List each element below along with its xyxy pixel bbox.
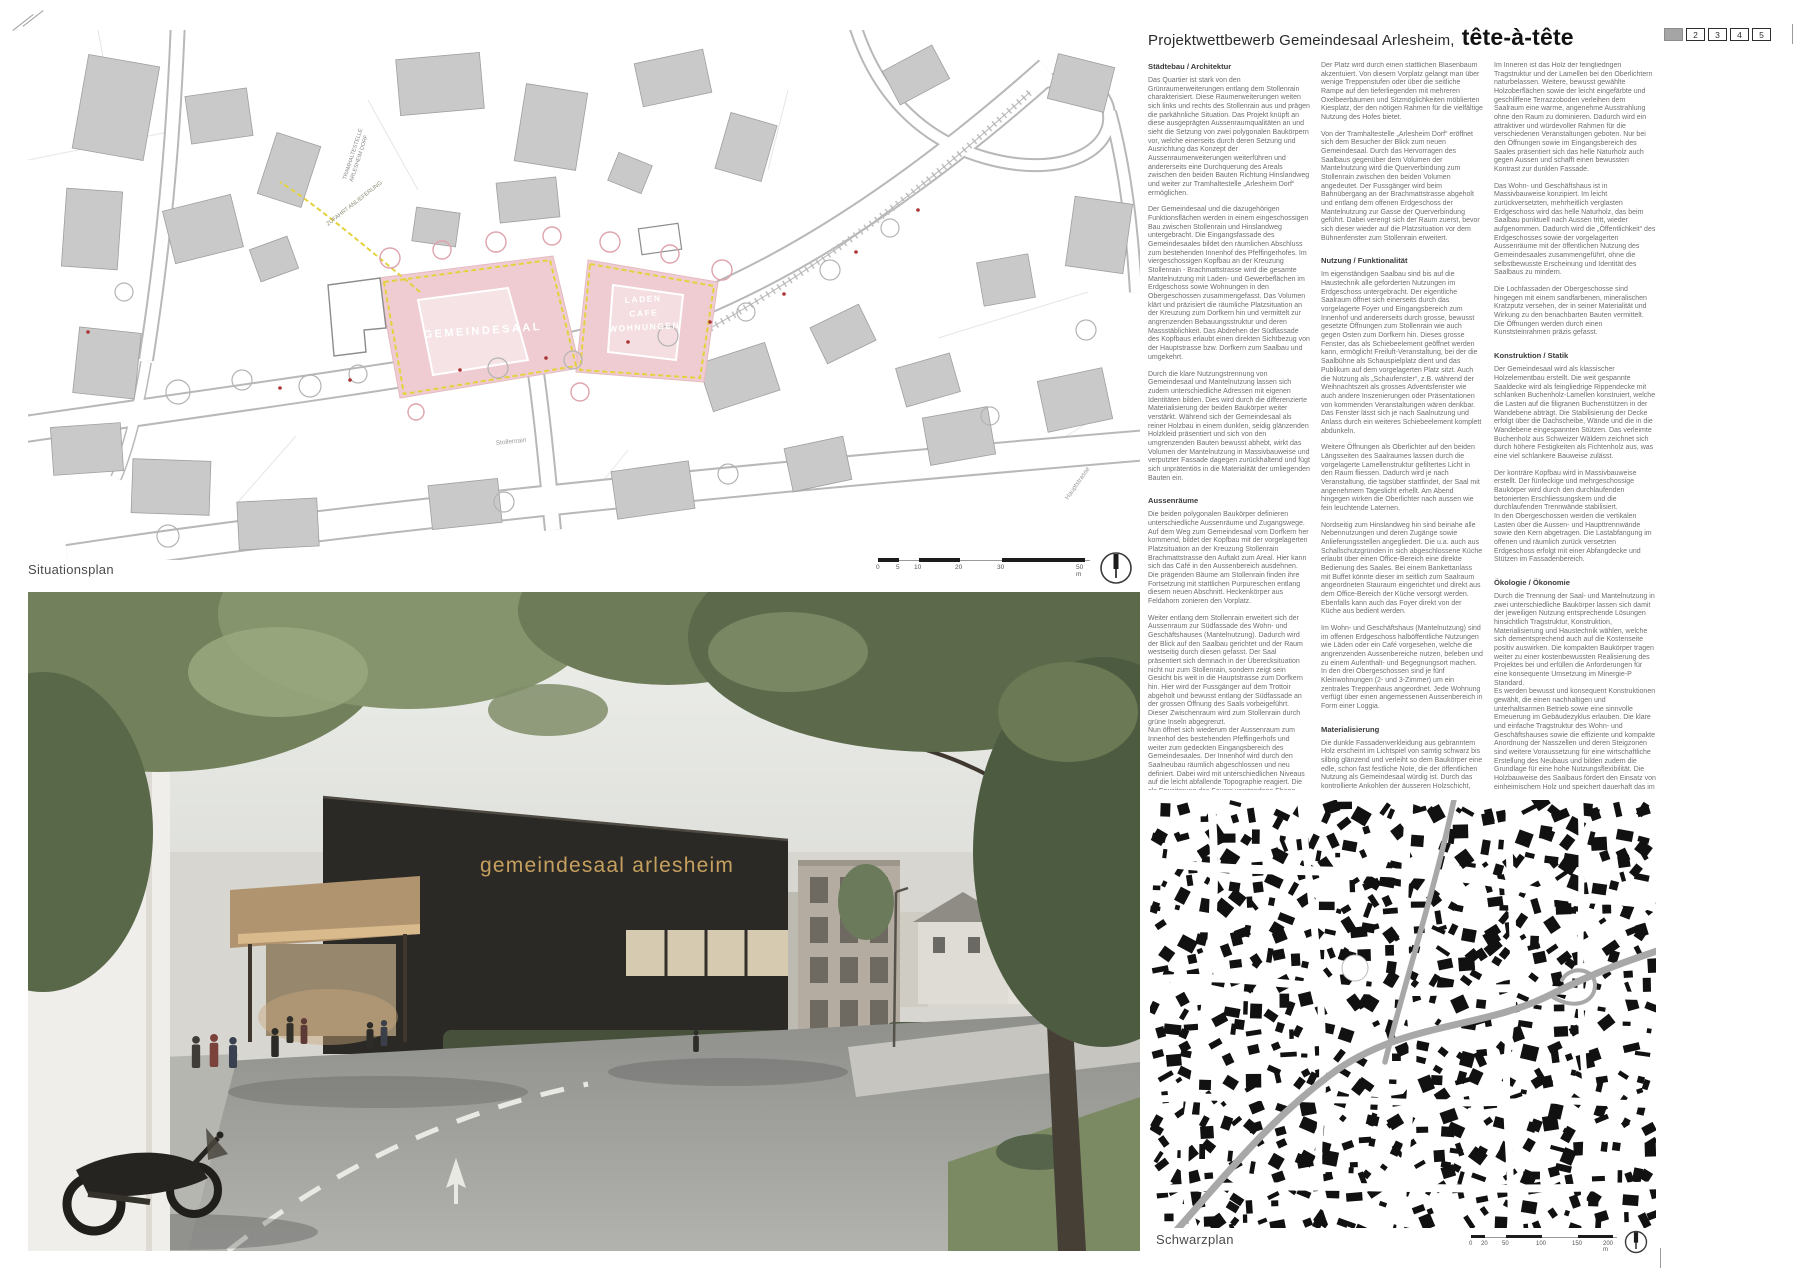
- body-paragraph: Es werden bewusst und konsequent Konstru…: [1494, 688, 1656, 790]
- north-arrow-icon: [1096, 548, 1136, 588]
- scalebar-segment: [919, 558, 960, 562]
- body-paragraph: Weiter entlang dem Stollenrain erweitert…: [1148, 615, 1310, 728]
- body-paragraph: Die dunkle Fassadenverkleidung aus gebra…: [1321, 740, 1483, 790]
- competition-board: Projektwettbewerb Gemeindesaal Arlesheim…: [0, 0, 1800, 1279]
- body-paragraph: Die beiden polygonalen Baukörper definie…: [1148, 511, 1310, 606]
- scalebar-tick: 200 m: [1603, 1241, 1617, 1253]
- crop-mark: [12, 14, 33, 31]
- body-paragraph: Im Wohn- und Geschäftshaus (Mantelnutzun…: [1321, 625, 1483, 712]
- scalebar-segment: [1578, 1235, 1613, 1238]
- body-paragraph: Der Gemeindesaal wird als klassischer Ho…: [1494, 366, 1656, 461]
- schwarzplan-caption: Schwarzplan: [1156, 1232, 1234, 1247]
- section-heading: Aussenräume: [1148, 496, 1310, 505]
- text-column: Der Platz wird durch einen stattlichen B…: [1321, 62, 1483, 790]
- scalebar-tick: 20: [1481, 1241, 1488, 1247]
- page-tabs: 2 3 4 5: [1664, 28, 1771, 41]
- scalebar-tick: 50: [1502, 1241, 1509, 1247]
- crop-mark: [1792, 24, 1793, 44]
- section-heading: Materialisierung: [1321, 725, 1483, 734]
- label-tramhaltestelle: TRAMHALTESTELLE ARLESHEIM DORF: [342, 128, 371, 183]
- section-heading: Konstruktion / Statik: [1494, 351, 1656, 360]
- schwarzplan-panel: [1150, 800, 1656, 1228]
- scalebar-tick: 5: [896, 564, 900, 571]
- scalebar-tick: 20: [955, 564, 962, 571]
- situationsplan-scalebar: 0 5 10 20 30 50 m: [878, 558, 1090, 576]
- body-paragraph: Das Quartier ist stark von den Grünraume…: [1148, 77, 1310, 198]
- body-paragraph: Im eigenständigen Saalbau sind bis auf d…: [1321, 271, 1483, 436]
- scalebar-tick: 100: [1536, 1241, 1546, 1247]
- schwarzplan-plaza: [1342, 955, 1368, 981]
- label-zufahrt-anlieferung: ZUFAHRT ANLIEFERUNG: [326, 180, 384, 228]
- title-prefix: Projektwettbewerb Gemeindesaal Arlesheim…: [1148, 32, 1455, 49]
- scalebar-segment: [878, 558, 899, 562]
- body-paragraph: Durch die klare Nutzungstrennung von Gem…: [1148, 371, 1310, 484]
- scalebar-tick: 10: [914, 564, 921, 571]
- facade-lettering: gemeindesaal arlesheim: [480, 854, 734, 877]
- text-columns: Städtebau / ArchitekturDas Quartier ist …: [1148, 62, 1656, 790]
- situationsplan-caption: Situationsplan: [28, 562, 114, 577]
- tab-sheet-4[interactable]: 4: [1730, 28, 1749, 41]
- scalebar-tick: 30: [997, 564, 1004, 571]
- section-heading: Nutzung / Funktionalität: [1321, 256, 1483, 265]
- section-heading: Ökologie / Ökonomie: [1494, 578, 1656, 587]
- scalebar-tick: 150: [1572, 1241, 1582, 1247]
- schwarzplan-scalebar: 0 20 50 100 150 200 m: [1471, 1235, 1617, 1251]
- crop-mark: [1660, 1248, 1661, 1268]
- perspective-rendering: gemeindesaal arlesheim: [28, 592, 1140, 1251]
- body-paragraph: Das Wohn- und Geschäftshaus ist in Massi…: [1494, 183, 1656, 278]
- tab-sheet-5[interactable]: 5: [1752, 28, 1771, 41]
- label-hauptstrasse: Hauptstrasse: [1064, 465, 1092, 501]
- street-tree: [838, 864, 894, 940]
- text-column: Im Inneren ist das Holz der feingliedrig…: [1494, 62, 1656, 790]
- scalebar-segment: [1471, 1235, 1485, 1238]
- body-paragraph: Durch die Trennung der Saal- und Manteln…: [1494, 593, 1656, 688]
- page-title: Projektwettbewerb Gemeindesaal Arlesheim…: [1148, 24, 1708, 51]
- svg-text:LADEN: LADEN: [624, 293, 661, 305]
- scalebar-segment: [1002, 558, 1085, 562]
- tab-current-sheet[interactable]: [1664, 28, 1683, 41]
- body-paragraph: Im Inneren ist das Holz der feingliedrig…: [1494, 62, 1656, 175]
- body-paragraph: Nun öffnet sich wiederum der Aussenraum …: [1148, 727, 1310, 790]
- body-paragraph: Der Gemeindesaal und die dazugehörigen F…: [1148, 206, 1310, 362]
- scalebar-tick: 0: [876, 564, 880, 571]
- body-paragraph: In den Obergeschossen werden die vertika…: [1494, 513, 1656, 565]
- title-project-name: tête-à-tête: [1462, 24, 1574, 51]
- body-paragraph: Der konträre Kopfbau wird in Massivbauwe…: [1494, 470, 1656, 513]
- label-stollenrain: Stollenrain: [495, 437, 527, 447]
- svg-text:CAFE: CAFE: [629, 307, 659, 319]
- text-column: Städtebau / ArchitekturDas Quartier ist …: [1148, 62, 1310, 790]
- body-paragraph: Weitere Öffnungen als Oberlichter auf de…: [1321, 444, 1483, 513]
- body-paragraph: Nordseitig zum Hinslandweg hin sind bein…: [1321, 522, 1483, 617]
- situationsplan-drawing: GEMEINDESAAL LADEN CAFE WOHNUNGEN ZUFAHR…: [28, 30, 1140, 560]
- tab-sheet-2[interactable]: 2: [1686, 28, 1705, 41]
- schwarzplan-map: [1150, 800, 1656, 1228]
- body-paragraph: Die Lochfassaden der Obergeschosse sind …: [1494, 286, 1656, 338]
- section-heading: Städtebau / Architektur: [1148, 62, 1310, 71]
- scalebar-segment: [1506, 1235, 1542, 1238]
- body-paragraph: Von der Tramhaltestelle „Arlesheim Dorf“…: [1321, 131, 1483, 244]
- north-arrow-icon: [1622, 1228, 1650, 1256]
- tab-sheet-3[interactable]: 3: [1708, 28, 1727, 41]
- scalebar-tick: 50 m: [1076, 564, 1090, 578]
- situationsplan-panel: GEMEINDESAAL LADEN CAFE WOHNUNGEN ZUFAHR…: [28, 30, 1140, 560]
- body-paragraph: Der Platz wird durch einen stattlichen B…: [1321, 62, 1483, 123]
- scalebar-tick: 0: [1469, 1241, 1472, 1247]
